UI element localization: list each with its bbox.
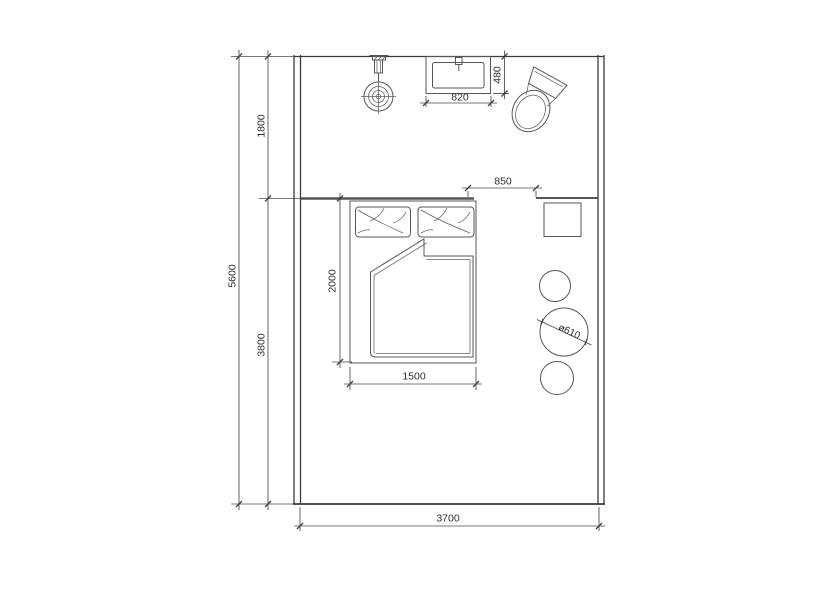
dim-label-bed-width: 1500: [402, 372, 425, 383]
nightstand: [544, 203, 581, 237]
toilet: [504, 67, 567, 139]
dim-label-vanity-width: 820: [451, 92, 469, 103]
pillow-right: [418, 207, 474, 237]
dim-label-upper-zone: 1800: [257, 114, 268, 137]
dim-label-room-width: 3700: [436, 514, 459, 525]
partition-lines: [301, 198, 599, 199]
dim-label-lower-zone: 3800: [257, 333, 268, 356]
duvet: [371, 239, 474, 357]
stool-bottom: [541, 362, 574, 395]
pillow-left: [356, 207, 411, 237]
floor-plan-canvas: 5600 1800 3800 2000 1500 820 480 850 370…: [0, 0, 837, 592]
dim-label-bed-length: 2000: [328, 269, 339, 292]
dim-label-opening: 850: [494, 177, 512, 188]
pendant-light: [361, 56, 396, 115]
dim-label-vanity-depth: 480: [493, 66, 504, 84]
double-bed: [350, 201, 476, 363]
dim-label-overall-height: 5600: [228, 264, 239, 287]
stool-top: [540, 271, 571, 302]
vanity-sink: [426, 57, 491, 94]
floor-plan-drawing: [0, 0, 837, 592]
